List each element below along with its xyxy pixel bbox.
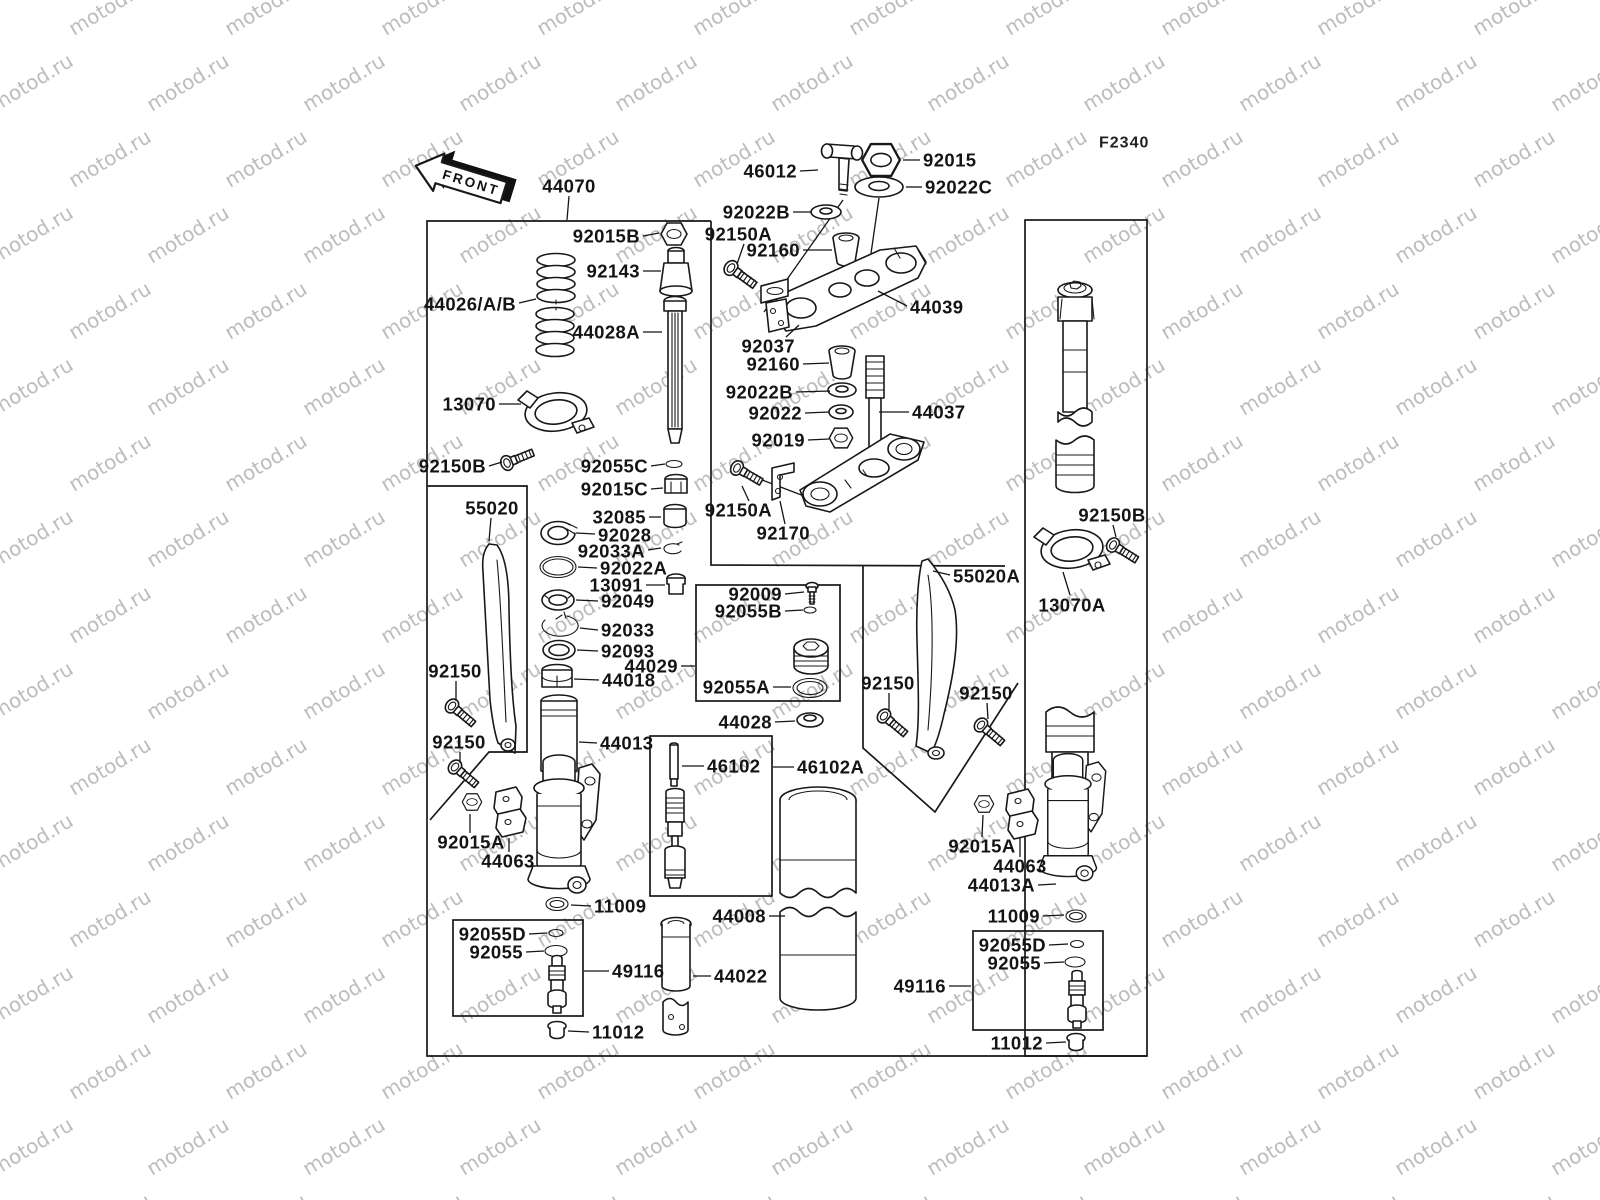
watermark-text: motod.ru [1000,0,1091,40]
part-label-92015B: 92015B [573,226,640,247]
part-label-92022B: 92022B [723,202,790,223]
watermark-text: motod.ru [64,0,155,40]
watermark-text: motod.ru [1312,732,1403,800]
watermark-text: motod.ru [1468,428,1559,496]
watermark-text: motod.ru [1234,352,1325,420]
part-label-92022: 92022 [749,403,802,424]
part-oring-11009-left [546,898,568,911]
watermark-text: motod.ru [688,1036,779,1104]
part-washer-44028-lower [797,713,823,727]
watermark-text: motod.ru [1312,124,1403,192]
watermark-text: motod.ru [1312,0,1403,40]
part-label-44018: 44018 [602,670,655,691]
leader-line-92033 [580,628,598,630]
watermark-text: motod.ru [1546,200,1600,268]
part-label-92160: 92160 [747,354,800,375]
part-nut-92019 [829,428,852,448]
leader-line-92150A [737,244,744,264]
watermark-text: motod.ru [1312,428,1403,496]
leader-line-11012 [568,1031,589,1032]
part-label-92055: 92055 [470,942,523,963]
leader-line-44013A [1038,884,1056,885]
watermark-text: motod.ru [0,808,77,876]
watermark-text: motod.ru [1390,48,1481,116]
watermark-text: motod.ru [298,656,389,724]
part-washer-92022B-upper [811,205,841,219]
part-label-92150B: 92150B [1078,505,1145,526]
watermark-text: motod.ru [1234,504,1325,572]
part-label-44039: 44039 [910,297,963,318]
watermark-text: motod.ru [0,48,77,116]
watermark-text: motod.ru [376,580,467,648]
watermark-text: motod.ru [844,1188,935,1200]
part-screw-92150-right-first [875,706,911,739]
part-label-92150B: 92150B [419,456,486,477]
watermark-text: motod.ru [688,124,779,192]
watermark-text: motod.ru [1078,352,1169,420]
watermark-text: motod.ru [766,48,857,116]
part-cylinder-44022 [661,918,691,1036]
watermark-text: motod.ru [1390,1112,1481,1180]
figure-code: F2340 [1099,135,1149,152]
watermark-text: motod.ru [454,200,545,268]
watermark-text: motod.ru [1156,124,1247,192]
part-cup-32085 [664,505,686,528]
part-nut-92015 [862,144,900,176]
part-label-44013A: 44013A [968,875,1035,896]
part-label-44037: 44037 [912,402,965,423]
watermark-text: motod.ru [142,808,233,876]
watermark-text: motod.ru [1234,960,1325,1028]
watermark-text: motod.ru [220,428,311,496]
watermark-text: motod.ru [64,1188,155,1200]
part-label-49116: 49116 [894,976,946,997]
watermark-text: motod.ru [610,48,701,116]
part-label-92150: 92150 [959,683,1012,704]
part-label-92015A: 92015A [437,832,504,853]
part-damper-92160-lower [829,346,855,379]
part-label-13070A: 13070A [1038,595,1105,616]
watermark-text: motod.ru [64,276,155,344]
watermark-text: motod.ru [454,960,545,1028]
part-label-44026/A/B: 44026/A/B [424,294,516,315]
parts-diagram-page: motod.rumotod.rumotod.rumotod.rumotod.ru… [0,0,1600,1200]
part-screw-92150-right-second [972,715,1008,748]
watermark-text: motod.ru [1468,1036,1559,1104]
part-label-11012: 11012 [592,1022,644,1043]
part-label-92055: 92055 [988,953,1041,974]
watermark-text: motod.ru [1156,884,1247,952]
watermark-text: motod.ru [1156,1036,1247,1104]
watermark-text: motod.ru [220,884,311,952]
watermark-text: motod.ru [1390,200,1481,268]
watermark-text: motod.ru [1390,960,1481,1028]
watermark-text: motod.ru [0,352,77,420]
part-label-92033: 92033 [601,620,654,641]
watermark-text: motod.ru [532,1036,623,1104]
part-label-44008: 44008 [713,906,766,927]
part-label-92150: 92150 [432,732,485,753]
watermark-text: motod.ru [454,48,545,116]
watermark-text: motod.ru [220,1188,311,1200]
watermark-text: motod.ru [1156,276,1247,344]
part-nut-92015B [661,223,687,245]
watermark-text: motod.ru [64,580,155,648]
watermark-text: motod.ru [1390,352,1481,420]
watermark-text: motod.ru [1234,808,1325,876]
watermark-text: motod.ru [1000,124,1091,192]
watermark-text: motod.ru [142,504,233,572]
watermark-text: motod.ru [142,352,233,420]
watermark-text: motod.ru [922,1112,1013,1180]
part-clamp-13070A [1034,526,1110,571]
leader-line-92028 [576,533,595,534]
watermark-text: motod.ru [1468,0,1559,40]
watermark-text: motod.ru [922,200,1013,268]
part-nut-92015A-left [462,794,482,811]
watermark-text: motod.ru [1234,200,1325,268]
leader-line-92055 [526,951,544,952]
watermark-text: motod.ru [220,124,311,192]
part-screw-92009 [806,583,818,605]
part-label-44028: 44028 [719,712,772,733]
watermark-text: motod.ru [0,1112,77,1180]
part-oring-92055C [666,461,682,468]
leader-line-92150B [489,462,502,466]
part-adjuster-92143 [660,248,692,297]
leader-line-92009 [785,592,804,594]
part-label-92150: 92150 [861,673,914,694]
watermark-text: motod.ru [220,1036,311,1104]
part-label-49116: 49116 [612,961,664,982]
part-seal-92093 [543,641,575,660]
leader-line-92022A [578,567,597,568]
watermark-layer: motod.rumotod.rumotod.rumotod.rumotod.ru… [0,0,1600,1200]
part-label-44028A: 44028A [573,322,640,343]
watermark-text: motod.ru [220,580,311,648]
watermark-text: motod.ru [64,884,155,952]
part-label-44022: 44022 [714,966,767,987]
part-label-92150A: 92150A [705,500,772,521]
watermark-text: motod.ru [0,656,77,724]
part-washer-92022B-lower [828,383,856,397]
leader-line-46012 [800,170,818,171]
watermark-text: motod.ru [298,808,389,876]
watermark-text: motod.ru [376,1036,467,1104]
part-ring-92022A [540,557,576,578]
watermark-text: motod.ru [1156,0,1247,40]
part-cap-11012-right [1067,1034,1085,1051]
part-nut-92015A-right [974,796,994,813]
watermark-text: motod.ru [1078,200,1169,268]
part-label-55020: 55020 [465,498,518,519]
part-outer-tube-44008 [780,787,856,1010]
watermark-text: motod.ru [64,124,155,192]
part-label-92143: 92143 [587,261,640,282]
leader-line-92150 [987,703,988,719]
leader-line-92055C [651,464,665,466]
watermark-text: motod.ru [64,428,155,496]
watermark-text: motod.ru [1468,580,1559,648]
watermark-text: motod.ru [766,1112,857,1180]
watermark-text: motod.ru [64,1036,155,1104]
part-piston-44029 [794,639,828,674]
watermark-text: motod.ru [142,656,233,724]
watermark-text: motod.ru [922,504,1013,572]
part-washer-92022 [829,405,853,419]
leader-line-44026/A/B [519,299,536,303]
watermark-text: motod.ru [1312,1036,1403,1104]
part-holder-92037 [761,279,789,332]
part-label-92015C: 92015C [581,479,648,500]
leader-line-92170 [780,501,785,524]
watermark-text: motod.ru [298,504,389,572]
watermark-text: motod.ru [844,0,935,40]
part-label-11009: 11009 [988,906,1040,927]
watermark-text: motod.ru [1312,276,1403,344]
part-oring-92055B [804,607,816,613]
watermark-text: motod.ru [1078,960,1169,1028]
part-label-92022B: 92022B [726,382,793,403]
watermark-text: motod.ru [142,1112,233,1180]
part-label-92150: 92150 [428,661,481,682]
part-label-13070: 13070 [443,394,496,415]
part-washer-92022C [855,177,903,197]
watermark-text: motod.ru [1234,1112,1325,1180]
watermark-text: motod.ru [298,48,389,116]
watermark-text: motod.ru [1468,884,1559,952]
watermark-text: motod.ru [1078,48,1169,116]
watermark-text: motod.ru [1000,1188,1091,1200]
part-damper-rod-44028A [664,297,686,444]
part-valve-49116-right [1068,971,1086,1029]
watermark-text: motod.ru [1546,352,1600,420]
part-seal-92049 [542,590,574,610]
watermark-text: motod.ru [0,504,77,572]
part-label-92049: 92049 [601,591,654,612]
watermark-text: motod.ru [1390,504,1481,572]
watermark-text: motod.ru [454,1112,545,1180]
watermark-text: motod.ru [1390,656,1481,724]
part-fork-tube-right-upper [1056,281,1094,493]
part-valve-49116-left [548,956,566,1014]
watermark-text: motod.ru [220,276,311,344]
watermark-text: motod.ru [688,0,779,40]
watermark-text: motod.ru [688,1188,779,1200]
part-label-92015A: 92015A [948,836,1015,857]
leader-line-92015C [651,488,663,489]
part-cap-11012-left [548,1022,566,1039]
watermark-text: motod.ru [1234,48,1325,116]
part-bushing-13091 [667,574,685,594]
part-clamp-44063-left [494,787,526,837]
part-oring-92055D-right [1071,941,1084,948]
part-holder-92170 [772,463,794,500]
watermark-text: motod.ru [220,732,311,800]
leader-line-92055B [785,610,803,611]
leader-line-92022 [805,412,829,413]
part-piece-92015C [665,475,687,494]
watermark-text: motod.ru [532,1188,623,1200]
part-push-rod-46102 [665,743,685,888]
watermark-text: motod.ru [220,0,311,40]
watermark-text: motod.ru [1156,428,1247,496]
watermark-text: motod.ru [1234,656,1325,724]
part-ring-92028 [541,522,578,545]
watermark-text: motod.ru [1546,504,1600,572]
part-label-46012: 46012 [744,161,797,182]
part-label-92170: 92170 [757,523,810,544]
watermark-text: motod.ru [0,960,77,1028]
watermark-text: motod.ru [1156,732,1247,800]
watermark-text: motod.ru [0,200,77,268]
part-label-44013: 44013 [600,733,653,754]
watermark-text: motod.ru [142,960,233,1028]
watermark-text: motod.ru [1312,884,1403,952]
watermark-text: motod.ru [1546,656,1600,724]
part-bolt-92150A-upper [721,258,759,292]
part-label-44070: 44070 [542,176,595,197]
part-screw-92150-left-lower [446,757,482,790]
exploded-parts-diagram: motod.rumotod.rumotod.rumotod.rumotod.ru… [0,0,1600,1200]
watermark-text: motod.ru [1546,960,1600,1028]
part-clamp-44063-right [1006,789,1038,839]
watermark-text: motod.ru [298,960,389,1028]
watermark-text: motod.ru [610,808,701,876]
leader-line-92055 [1044,962,1064,963]
watermark-text: motod.ru [376,0,467,40]
watermark-text: motod.ru [844,884,935,952]
part-label-46102A: 46102A [797,757,864,778]
part-label-44063: 44063 [993,856,1046,877]
watermark-text: motod.ru [922,48,1013,116]
part-label-44063: 44063 [481,851,534,872]
part-clamp-13070 [518,389,594,434]
watermark-text: motod.ru [1546,1112,1600,1180]
part-label-92160: 92160 [747,240,800,261]
watermark-text: motod.ru [1468,276,1559,344]
watermark-text: motod.ru [1546,48,1600,116]
watermark-text: motod.ru [610,1112,701,1180]
watermark-text: motod.ru [298,1112,389,1180]
part-label-92055A: 92055A [703,677,770,698]
part-bolt-92150B-left [499,446,536,473]
part-label-55020A: 55020A [953,566,1020,587]
leader-line-11012 [1046,1042,1066,1043]
leader-line-92093 [577,650,598,651]
leader-line-92019 [808,439,829,440]
leader-line-92055D [1049,944,1068,945]
part-label-46102: 46102 [707,756,760,777]
part-bushing-44018 [542,665,572,688]
watermark-text: motod.ru [376,1188,467,1200]
watermark-text: motod.ru [1546,808,1600,876]
part-guard-55020 [483,544,516,753]
watermark-text: motod.ru [1156,1188,1247,1200]
watermark-text: motod.ru [64,732,155,800]
part-label-92022C: 92022C [925,177,992,198]
watermark-text: motod.ru [1312,1188,1403,1200]
part-label-92055B: 92055B [715,601,782,622]
watermark-text: motod.ru [1468,732,1559,800]
part-label-92055C: 92055C [581,456,648,477]
part-guard-55020A [916,559,957,759]
part-label-92019: 92019 [752,430,805,451]
leader-line-44070 [567,196,569,220]
watermark-text: motod.ru [1468,1188,1559,1200]
watermark-text: motod.ru [532,0,623,40]
watermark-text: motod.ru [298,352,389,420]
watermark-text: motod.ru [1078,1112,1169,1180]
watermark-text: motod.ru [1468,124,1559,192]
leader-line-44018 [574,679,599,680]
watermark-text: motod.ru [142,48,233,116]
watermark-text: motod.ru [610,352,701,420]
part-label-11009: 11009 [594,896,646,917]
watermark-text: motod.ru [844,1036,935,1104]
watermark-text: motod.ru [142,200,233,268]
part-label-92015: 92015 [923,150,976,171]
part-oring-92055-right [1065,957,1085,967]
watermark-text: motod.ru [1390,808,1481,876]
part-label-11012: 11012 [991,1033,1043,1054]
watermark-text: motod.ru [1156,580,1247,648]
watermark-text: motod.ru [298,200,389,268]
watermark-text: motod.ru [1312,580,1403,648]
